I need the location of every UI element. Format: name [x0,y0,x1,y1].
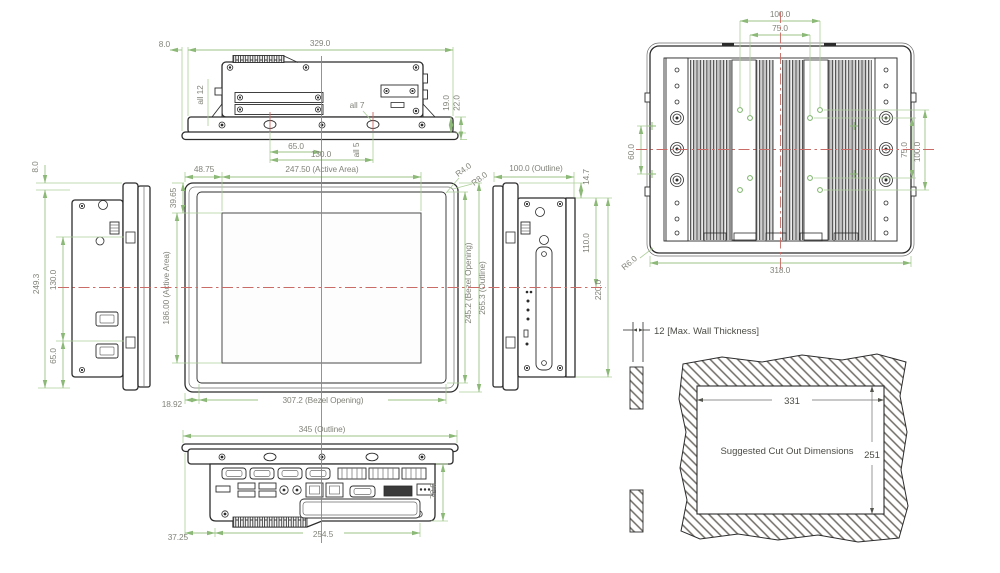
dim-label: 329.0 [310,38,331,48]
bottom-mount-slot [264,453,276,461]
rear-heatsink-fins [756,60,774,240]
dim-label: 249.3 [31,273,41,294]
dim-note: all 12 [195,85,205,105]
right-bezel-glass [493,186,503,387]
rear-heatsink-fins [782,60,804,240]
dim-label: 72.0 [428,483,438,499]
dim-label: 247.50 (Active Area) [285,164,359,174]
dimension-drawing-canvas: 8.0 329.0 all 12 all 7 19.0 22.0 65.0 13… [0,0,1000,573]
bottom-mount-slot [366,453,378,461]
dim-label: 37.25 [168,532,189,542]
hdmi-port [216,486,230,492]
bottom-vent-fins [233,517,307,527]
dim-label: 65.0 [288,141,304,151]
dim-label: 100.0 [912,141,922,162]
top-right-foot [423,104,435,117]
top-bracket-bar [235,105,323,115]
top-left-foot [212,104,222,117]
left-side-view: 8.0 249.3 130.0 65.0 [30,161,150,390]
left-hole [96,237,104,245]
dim-label: 130.0 [48,269,58,290]
dim-label: 220.0 [593,279,603,300]
cutout-width-label: 331 [784,396,800,407]
dim-label: 8.0 [30,161,40,173]
dvi-port [384,486,412,496]
dim-label: 60.0 [626,144,636,160]
dim-label: 18.92 [162,399,183,409]
dim-label: 39.65 [168,187,178,208]
dim-label: 345 (Outline) [299,424,346,434]
dim-label: 19.0 [441,95,451,111]
wall-dim-arrows [633,328,643,331]
rear-view: 100.0 75.0 60.0 75.0 100.0 R6.0 318.0 [619,9,934,275]
ethernet-port [326,483,343,497]
left-bezel-frame [123,183,138,390]
dim-label: 307.2 (Bezel Opening) [283,395,364,405]
dim-note: all 5 [351,142,361,157]
left-antenna-hole [99,201,108,210]
cutout-diagram: 12 [Max. Wall Thickness] 331 251 Suggest… [623,322,908,542]
usb-port [238,491,255,497]
top-left-clip [215,88,222,95]
right-bezel-frame [503,183,518,390]
usb-port [259,491,276,497]
rear-heatsink-fins [690,60,732,240]
bottom-io-serial-row [222,468,426,479]
wall-section-bar [630,367,643,409]
top-bracket-bar [235,93,323,103]
front-view: 48.75 247.50 (Active Area) R4.0 R8.0 39.… [161,160,489,409]
rear-heatsink-fins [828,60,872,240]
left-db9-profile [96,344,118,358]
dim-label: 8.0 [159,39,171,49]
top-bezel-lip [182,132,458,140]
wall-section-bar [630,490,643,532]
ethernet-port [306,483,323,497]
left-db9-profile [96,312,118,326]
dim-label: 245.2 (Bezel Opening) [463,242,473,323]
dim-label: 48.75 [194,164,215,174]
cutout-height-label: 251 [864,450,880,461]
top-view: 8.0 329.0 all 12 all 7 19.0 22.0 65.0 13… [159,38,467,163]
dim-label: 14.7 [581,169,591,185]
dim-label: 100.0 (Outline) [509,163,563,173]
usb-port [259,483,276,489]
bottom-view: 345 (Outline) 72.0 37.25 254.5 [168,424,458,542]
dim-label: 22.0 [452,95,462,111]
drawing-svg: 8.0 329.0 all 12 all 7 19.0 22.0 65.0 13… [0,0,1000,573]
dim-label: 65.0 [48,348,58,364]
right-antenna-hole [536,208,545,217]
dim-label: 110.0 [581,233,591,253]
dim-label: 254.5 [313,529,334,539]
wall-thickness-label: 12 [Max. Wall Thickness] [654,326,759,337]
usb-port [238,483,255,489]
dim-label: R4.0 [453,160,473,179]
top-heatsink-fins [233,56,284,63]
right-cover-plate [536,247,552,370]
right-side-view: 100.0 (Outline) 14.7 110.0 220.0 [493,163,612,390]
dim-note: all 7 [350,100,365,110]
cutout-caption: Suggested Cut Out Dimensions [720,446,853,457]
dim-label: R6.0 [619,253,639,272]
